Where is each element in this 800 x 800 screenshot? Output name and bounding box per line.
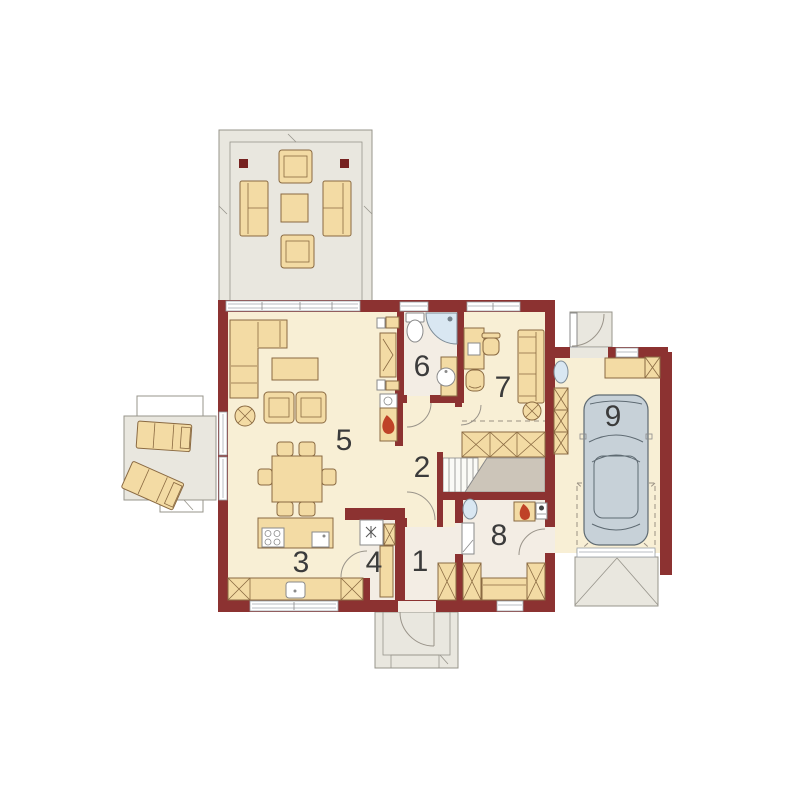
floor-plan-page: 1 2 3 4 5 6 7 8 9 bbox=[0, 0, 800, 800]
garage-canopy bbox=[575, 557, 658, 606]
workbench bbox=[605, 357, 660, 378]
garage-window bbox=[616, 348, 638, 357]
sun-lounger bbox=[136, 421, 192, 452]
room-label-utility: 8 bbox=[491, 519, 508, 552]
tv-cabinet bbox=[380, 333, 396, 377]
washing-machine bbox=[536, 503, 547, 519]
garage-door bbox=[577, 548, 655, 557]
coffee-table bbox=[272, 358, 318, 380]
room-label-living: 5 bbox=[336, 424, 353, 457]
utility-wardrobe bbox=[527, 563, 545, 600]
bench bbox=[482, 578, 527, 600]
room-label-bath: 6 bbox=[414, 350, 431, 383]
office-sofa bbox=[518, 330, 544, 403]
room-label-pantry: 4 bbox=[366, 546, 383, 579]
left-terrace bbox=[121, 396, 216, 512]
dining-table bbox=[272, 456, 322, 502]
island-sink bbox=[312, 532, 329, 547]
pantry-cabinet bbox=[384, 524, 395, 545]
kitchen-counter bbox=[228, 578, 363, 600]
room-label-office: 7 bbox=[495, 371, 512, 404]
kitchen-window bbox=[250, 601, 338, 611]
front-door-opening bbox=[398, 601, 436, 612]
terrace-armchair-top bbox=[279, 150, 312, 183]
entry-wardrobe bbox=[438, 563, 456, 600]
garage-side-landing bbox=[570, 312, 612, 347]
media-shelf bbox=[377, 317, 399, 328]
room-label-garage: 9 bbox=[605, 400, 622, 433]
dining-chair bbox=[258, 469, 272, 485]
dining-chair bbox=[299, 502, 315, 516]
dining-chair bbox=[277, 442, 293, 456]
garage-shelves bbox=[554, 388, 568, 454]
terrace-post bbox=[239, 159, 248, 168]
terrace-sofa-left bbox=[240, 181, 268, 236]
dining-chair bbox=[322, 469, 336, 485]
room-label-hall: 2 bbox=[414, 451, 431, 484]
toilet bbox=[406, 313, 424, 342]
door-leaf bbox=[462, 523, 474, 554]
fireplace bbox=[380, 394, 397, 441]
room-label-kitchen: 3 bbox=[293, 546, 310, 579]
entrance-porch bbox=[375, 612, 458, 668]
dining-chair bbox=[299, 442, 315, 456]
utility-garage-door-opening bbox=[545, 527, 555, 553]
armchair bbox=[296, 392, 326, 423]
room-label-entry: 1 bbox=[412, 545, 429, 578]
utility-washbasin bbox=[463, 499, 477, 519]
cooktop bbox=[262, 528, 284, 547]
bathroom-window bbox=[400, 302, 428, 311]
utility-wardrobe bbox=[463, 563, 481, 600]
dining-chair bbox=[277, 502, 293, 516]
fridge bbox=[360, 520, 383, 545]
boiler bbox=[514, 502, 535, 521]
top-terrace bbox=[219, 130, 372, 302]
office-window bbox=[467, 302, 520, 311]
office-chair bbox=[482, 333, 500, 355]
garage-washbasin bbox=[554, 361, 568, 383]
round-side-table bbox=[235, 406, 255, 426]
terrace-armchair-bottom bbox=[281, 235, 314, 268]
armchair bbox=[264, 392, 294, 423]
terrace-coffee-table bbox=[281, 194, 308, 222]
round-side-table bbox=[523, 402, 541, 420]
utility-window bbox=[497, 601, 523, 611]
desk bbox=[464, 328, 484, 369]
terrace-post bbox=[340, 159, 349, 168]
terrace-sofa-right bbox=[323, 181, 351, 236]
staircase bbox=[443, 458, 545, 492]
floor-plan: 1 2 3 4 5 6 7 8 9 bbox=[0, 0, 800, 800]
media-shelf bbox=[377, 380, 399, 390]
side-chair bbox=[466, 370, 484, 391]
terrace-sliding-door bbox=[226, 301, 360, 311]
kitchen-island bbox=[258, 518, 333, 548]
hall-wardrobe-row bbox=[462, 432, 545, 457]
